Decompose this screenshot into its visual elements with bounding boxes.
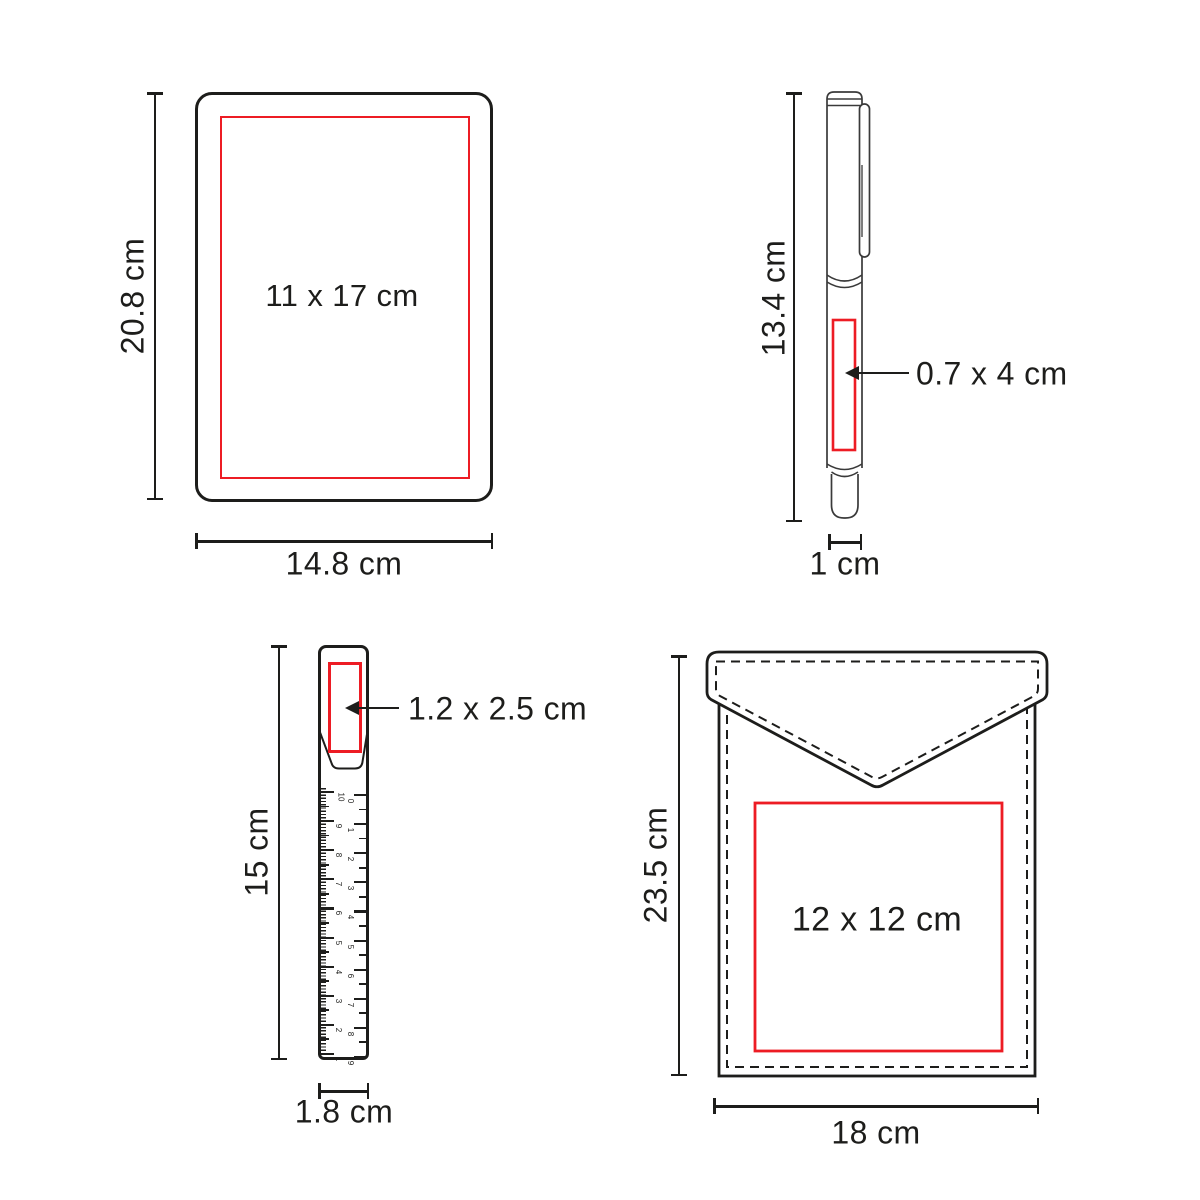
ruler-cm-tick [354,998,366,1000]
ruler-cm-tick [354,852,366,854]
notebook-width-label: 14.8 cm [286,546,403,583]
ruler-half-tick [359,867,366,869]
ruler-scale-number: 9 [346,1061,354,1065]
pen-print-arrow-line [857,372,909,375]
pen-clip [860,104,870,257]
ruler-print-area-label: 1.2 x 2.5 cm [408,691,587,728]
pen-cap-edge [827,282,862,288]
pen-print-arrow-head [845,366,859,380]
ruler-cm-tick [354,794,366,796]
dimension-cap [786,520,802,523]
pouch-height-dimension-line [678,655,681,1076]
notebook-height-dimension-line [154,92,157,500]
notebook-width-dimension-line [195,540,493,543]
ruler-scale-number: 3 [346,886,354,890]
pen-width-dimension-line [828,541,862,544]
ruler-cm-tick [354,823,366,825]
ruler-scale-number: 0 [346,799,354,803]
pouch-illustration [640,640,1060,1090]
dimension-cap [271,1058,287,1061]
dimension-cap [671,1074,687,1077]
ruler-width-dimension-line [318,1090,369,1093]
pen-height-dimension-line [793,92,796,522]
pen-tip-top-edge [832,472,859,477]
ruler-cm-tick [354,1056,366,1058]
pouch-width-dimension-line [713,1105,1039,1108]
ruler-print-arrow-line [357,707,399,710]
notebook-print-area-label: 11 x 17 cm [265,278,418,314]
product-dimensions-diagram: 11 x 17 cm 20.8 cm 14.8 cm 0.7 x 4 cm 13… [0,0,1200,1200]
ruler-half-tick [359,809,366,811]
pen-print-area-label: 0.7 x 4 cm [916,356,1068,393]
ruler-half-tick [359,1041,366,1043]
dimension-cap [271,645,287,648]
ruler-scale-number: 6 [346,973,354,977]
notebook-height-label: 20.8 cm [115,238,152,355]
ruler-scale-number: 1 [346,828,354,832]
pen-print-area [833,320,855,450]
pen-barrel-edge [827,464,862,470]
ruler-half-tick [359,983,366,985]
ruler-scale-number: 1 [334,1057,342,1061]
ruler-height-label: 15 cm [239,807,276,896]
pen-width-label: 1 cm [810,546,881,583]
ruler-width-label: 1.8 cm [295,1094,393,1131]
ruler-scale-number: 4 [346,915,354,919]
ruler-half-tick [359,896,366,898]
dimension-cap [491,533,494,549]
ruler-cm-tick [354,940,366,942]
ruler-height-dimension-line [278,645,281,1060]
pen-height-label: 13.4 cm [756,240,793,357]
ruler-cm-tick [354,910,366,912]
ruler-half-tick [359,1012,366,1014]
ruler-half-tick [359,954,366,956]
dimension-cap [786,92,802,95]
pen-cap-edge [827,275,862,281]
ruler-cm-tick [354,969,366,971]
dimension-cap [713,1098,716,1114]
ruler-half-tick [359,925,366,927]
pouch-width-label: 18 cm [831,1115,920,1152]
pen-illustration [780,85,890,535]
ruler-scale-number: 2 [346,857,354,861]
ruler-scale-number: 5 [346,944,354,948]
ruler-cm-tick [354,1027,366,1029]
ruler-right-scale: 0123456789 [321,648,366,1057]
pouch-print-area-label: 12 x 12 cm [792,901,962,940]
ruler-print-arrow-head [345,701,359,715]
ruler-scale-number: 8 [346,1032,354,1036]
pouch-height-label: 23.5 cm [638,807,675,924]
ruler-half-tick [359,838,366,840]
ruler-scale-number: 7 [346,1002,354,1006]
pen-tip [832,474,859,518]
dimension-cap [147,92,163,95]
dimension-cap [1037,1098,1040,1114]
dimension-cap [671,655,687,658]
dimension-cap [195,533,198,549]
dimension-cap [147,498,163,501]
ruler-cm-tick [354,881,366,883]
